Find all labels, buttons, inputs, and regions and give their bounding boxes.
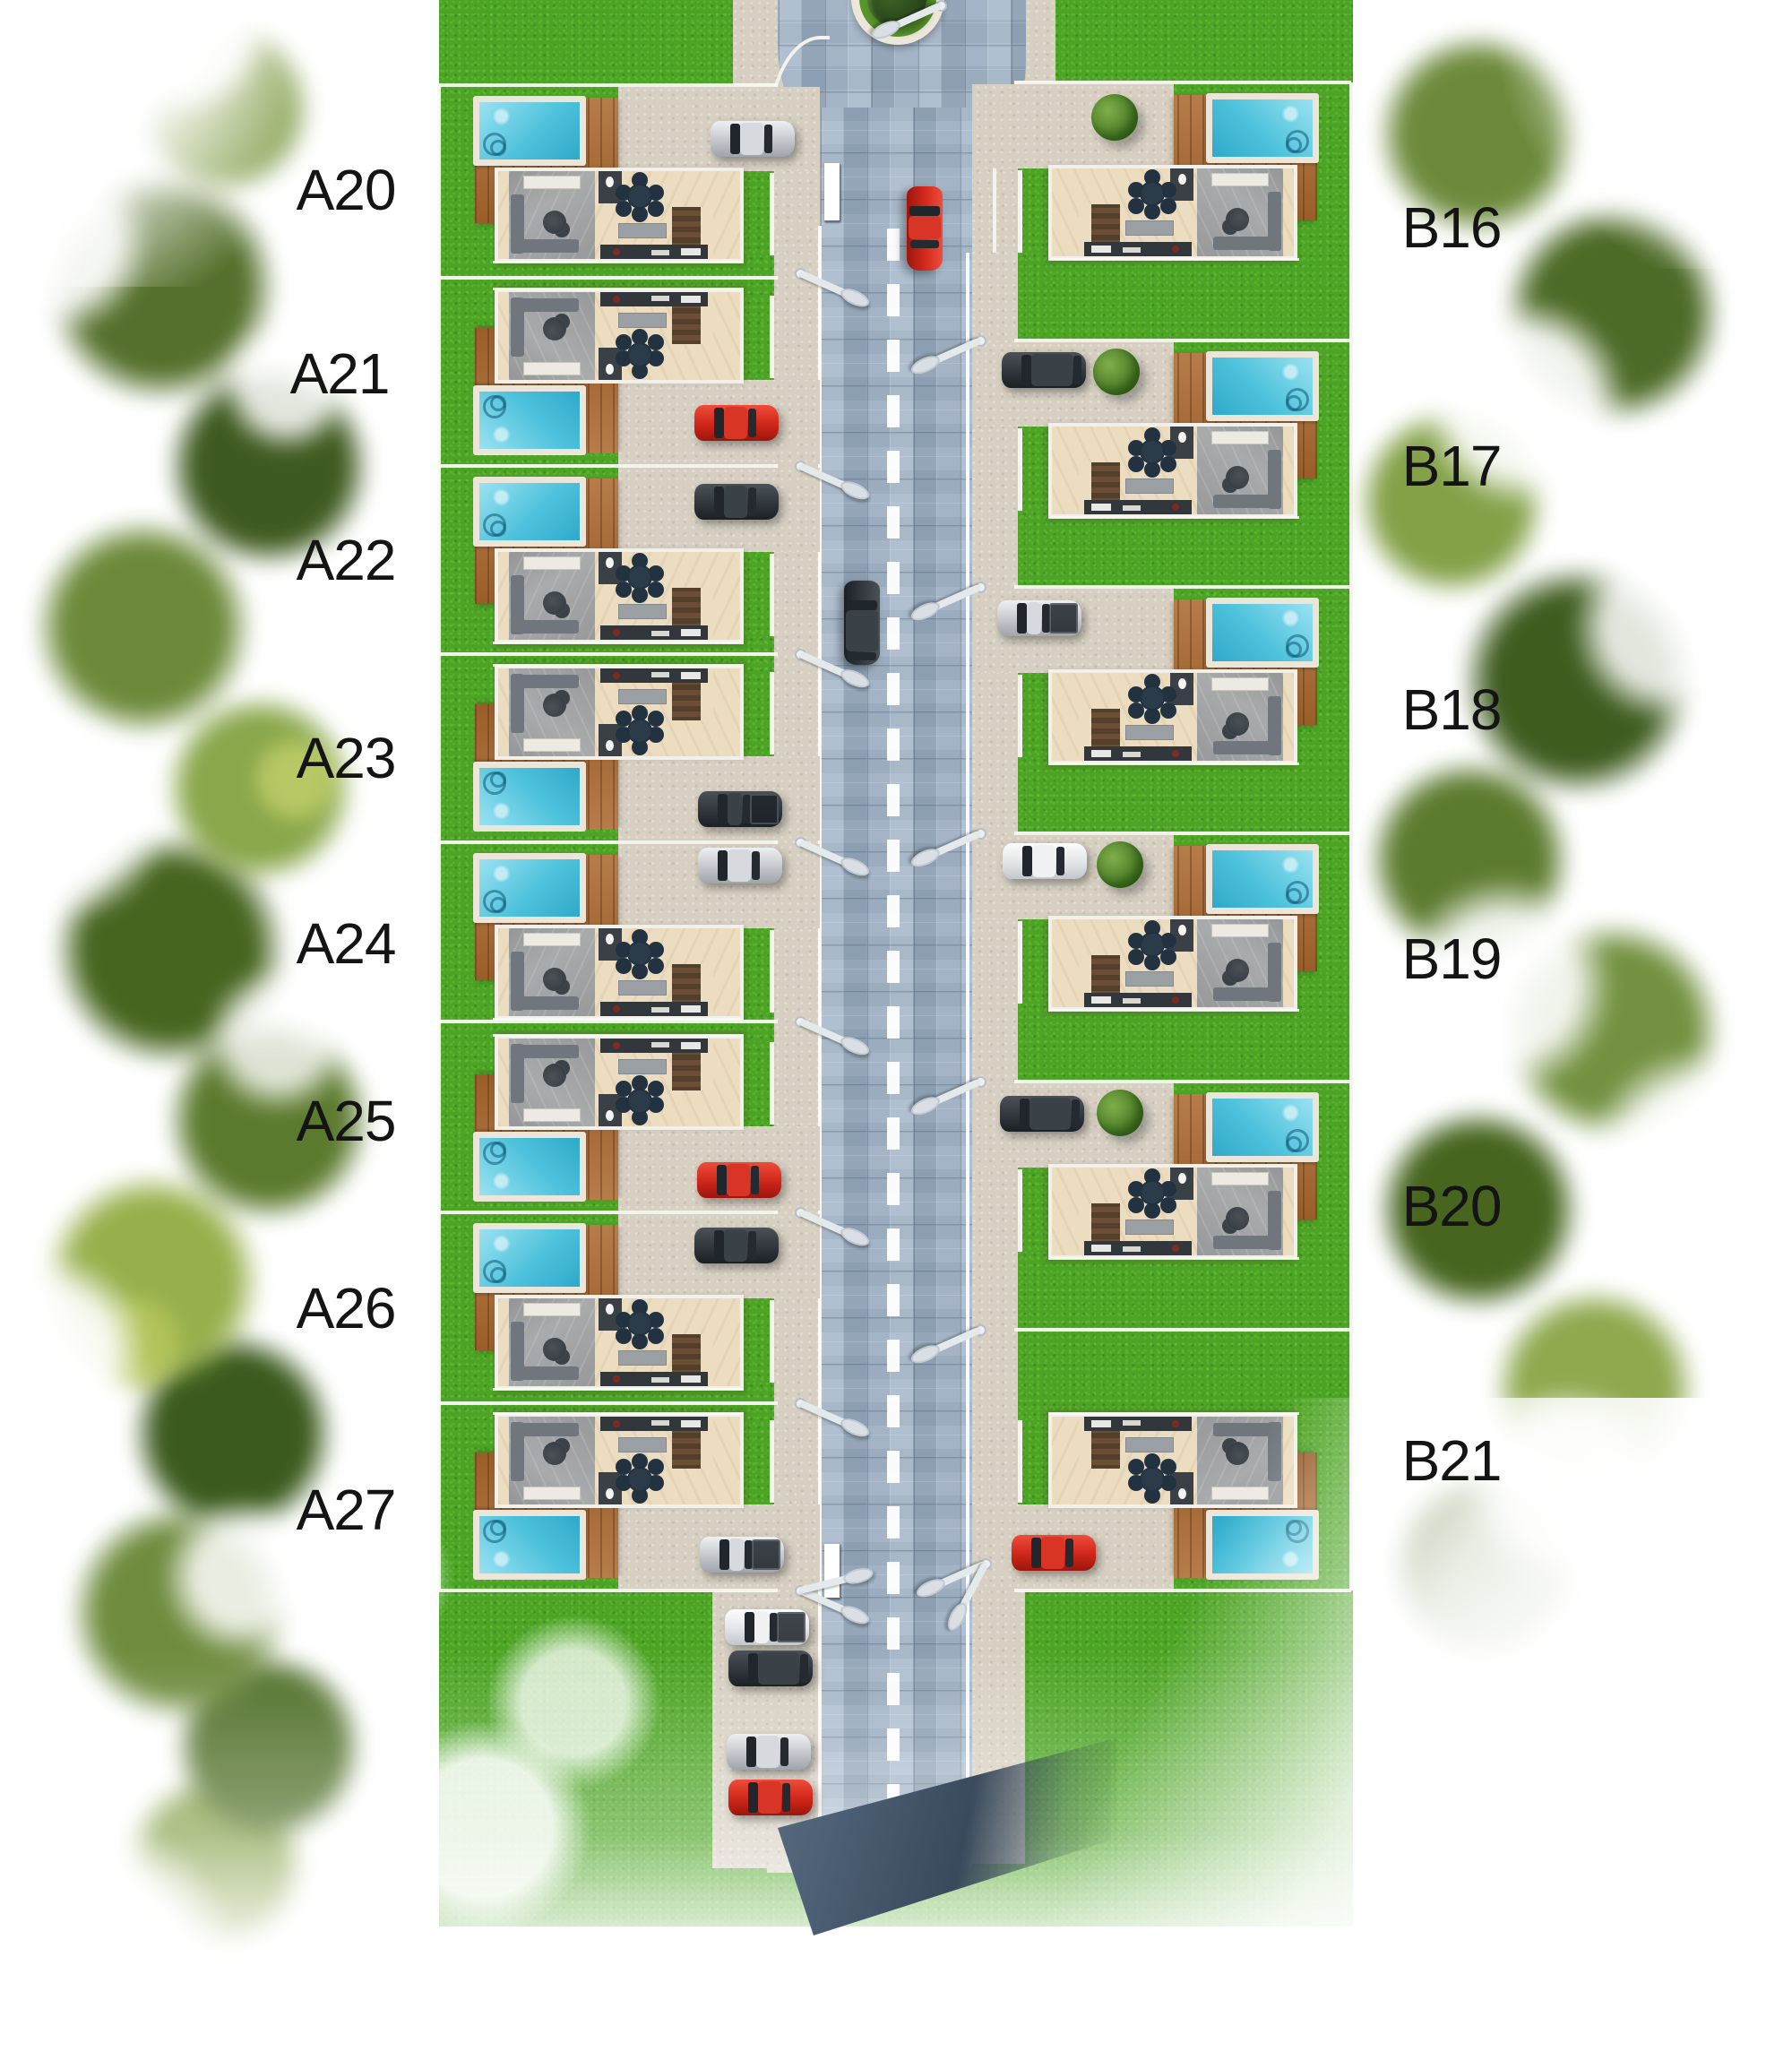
dining-table: [1142, 1182, 1163, 1203]
car: [700, 1537, 784, 1573]
pool-water: [1212, 99, 1313, 157]
villa-front-hedge: [742, 296, 769, 378]
pool-water: [479, 1516, 580, 1573]
dining-table: [629, 943, 650, 964]
coffee-table: [1226, 208, 1249, 231]
lot-label-B18[interactable]: B18: [1402, 677, 1502, 743]
villa-front-wall: [1018, 921, 1022, 1004]
pool-water: [479, 1229, 580, 1287]
villa-front-hedge: [1023, 170, 1050, 253]
settee: [1211, 1172, 1269, 1185]
fade-top-left: [0, 0, 412, 287]
settee: [523, 1303, 581, 1316]
site-plan: A20A21A22A23A24A25A26A27B16B17B18B19B20B…: [0, 0, 1792, 2060]
garden-wall: [493, 1388, 744, 1391]
bathroom: [1170, 673, 1193, 705]
dining-table: [629, 1090, 650, 1112]
car: [1002, 352, 1086, 388]
sofa: [511, 1366, 579, 1380]
car: [907, 186, 943, 271]
kitchen-counter: [600, 625, 708, 640]
living-room: [1197, 1168, 1283, 1255]
kitchen-counter: [600, 245, 708, 259]
settee: [523, 556, 581, 570]
bathroom: [599, 928, 622, 961]
villa-front-wall: [770, 930, 774, 1013]
villa-front-wall: [1018, 428, 1022, 511]
bathroom: [599, 1094, 622, 1126]
swimming-pool: [1206, 598, 1319, 668]
kitchen-counter: [600, 292, 708, 306]
villa-house: [1048, 916, 1297, 1011]
settee: [1211, 677, 1269, 691]
kitchen-counter: [600, 1039, 708, 1053]
bathroom: [599, 348, 622, 380]
sofa: [511, 996, 579, 1010]
kitchen-counter: [1084, 1241, 1192, 1255]
swimming-pool: [473, 853, 586, 923]
villa-house: [495, 548, 744, 643]
bathroom: [1170, 168, 1193, 201]
villa-house: [1048, 1164, 1297, 1259]
kitchen-counter: [1084, 746, 1192, 761]
bathroom: [1170, 1168, 1193, 1200]
villa-front-hedge: [1023, 675, 1050, 757]
car: [728, 1651, 813, 1686]
kitchen-island: [618, 313, 667, 328]
coffee-table: [543, 591, 566, 615]
villa-house: [1048, 669, 1297, 764]
living-room: [509, 1039, 595, 1126]
fence-line: [1014, 1589, 1351, 1592]
kitchen-island: [618, 604, 667, 619]
living-room: [509, 1417, 595, 1504]
dining-table: [1142, 441, 1163, 462]
villa-house: [495, 1295, 744, 1390]
lot-label-B17[interactable]: B17: [1402, 433, 1502, 499]
villa-driveway: [972, 84, 1174, 168]
dining-table: [1142, 687, 1163, 709]
lot-label-A25[interactable]: A25: [297, 1088, 396, 1154]
villa-house: [495, 665, 744, 760]
dining-table: [629, 720, 650, 742]
sofa: [1213, 987, 1281, 1001]
kitchen-counter: [1084, 242, 1192, 256]
fence-line: [439, 840, 778, 844]
kitchen-island: [1125, 971, 1174, 987]
coffee-table: [1226, 959, 1249, 982]
garden-wall: [493, 1412, 744, 1415]
pool-water: [479, 1138, 580, 1195]
villa-front-wall: [770, 554, 774, 636]
sofa: [511, 1045, 579, 1058]
pool-water: [479, 102, 580, 159]
foliage-left: [0, 0, 466, 2007]
villa-front-wall: [770, 672, 774, 754]
garden-wall: [1048, 1412, 1299, 1415]
coffee-table: [543, 211, 566, 234]
settee: [1211, 924, 1269, 937]
sofa: [1213, 1423, 1281, 1436]
lot-label-A21[interactable]: A21: [290, 340, 390, 407]
sofa: [511, 239, 579, 253]
bathroom: [599, 724, 622, 756]
villa-front-wall: [770, 1420, 774, 1503]
crosswalk-top: [824, 163, 971, 220]
car: [694, 405, 779, 441]
pool-ripple-icon: [483, 395, 506, 418]
swimming-pool: [473, 477, 586, 547]
car: [1003, 843, 1087, 879]
sofa: [1213, 237, 1281, 250]
swimming-pool: [473, 1510, 586, 1580]
dining-table: [629, 185, 650, 207]
coffee-table: [1226, 466, 1249, 489]
villa-front-hedge: [742, 173, 769, 255]
settee: [523, 738, 581, 752]
dining-table: [629, 1469, 650, 1490]
bathroom: [599, 1472, 622, 1504]
kitchen-counter: [600, 1417, 708, 1431]
villa-front-hedge: [742, 672, 769, 754]
car: [698, 848, 782, 883]
lot-A20[interactable]: [439, 85, 820, 278]
car: [727, 1734, 811, 1770]
garden-wall: [1048, 763, 1299, 765]
bathroom: [599, 552, 622, 584]
pool-water: [1212, 850, 1313, 908]
fence-line: [439, 83, 778, 87]
lot-label-B20[interactable]: B20: [1402, 1173, 1502, 1239]
coffee-table: [543, 1442, 566, 1465]
lot-label-B21[interactable]: B21: [1402, 1427, 1502, 1494]
fence-line: [1014, 339, 1351, 342]
garden-wall: [493, 288, 744, 290]
swimming-pool: [473, 1223, 586, 1293]
pool-water: [479, 483, 580, 540]
pool-ripple-icon: [483, 1260, 506, 1283]
coffee-table: [543, 1338, 566, 1361]
settee: [1211, 431, 1269, 444]
living-room: [509, 1298, 595, 1386]
lot-label-A24[interactable]: A24: [297, 910, 396, 977]
foliage-right: [1317, 0, 1792, 1810]
living-room: [509, 928, 595, 1016]
swimming-pool: [1206, 351, 1319, 421]
fade-top-right: [1469, 0, 1792, 269]
fence-line-west: [437, 85, 441, 1590]
villa-house: [495, 925, 744, 1020]
dining-table: [629, 566, 650, 588]
bathroom: [599, 1298, 622, 1331]
fence-line: [1014, 1328, 1351, 1332]
sofa: [1213, 741, 1281, 754]
kitchen-island: [618, 1059, 667, 1074]
pool-water: [1212, 1099, 1313, 1156]
swimming-pool: [473, 96, 586, 166]
living-room: [509, 292, 595, 380]
pool-water: [479, 859, 580, 917]
villa-B16: [972, 82, 1353, 262]
coffee-table: [1226, 712, 1249, 736]
dining-table: [629, 344, 650, 366]
villa-house: [495, 1413, 744, 1508]
villa-A20: [439, 85, 820, 264]
car: [711, 121, 795, 157]
garden-wall: [1048, 516, 1299, 519]
fence-line: [439, 276, 778, 280]
car: [697, 1162, 781, 1198]
villa-front-hedge: [1023, 1420, 1050, 1503]
villa-front-hedge: [742, 1420, 769, 1503]
fence-line: [439, 1020, 778, 1023]
kitchen-island: [618, 689, 667, 704]
villa-front-wall: [1018, 1420, 1022, 1503]
pool-water: [1212, 358, 1313, 415]
car: [694, 484, 779, 520]
lot-label-B19[interactable]: B19: [1402, 926, 1502, 992]
pool-ripple-icon: [483, 1520, 506, 1543]
villa-front-wall: [770, 173, 774, 255]
sofa: [511, 675, 579, 688]
villa-front-hedge: [1023, 921, 1050, 1004]
fence-line: [1014, 81, 1351, 84]
swimming-pool: [473, 1132, 586, 1202]
villa-house: [495, 1035, 744, 1130]
pool-water: [1212, 604, 1313, 661]
fence-line: [1014, 832, 1351, 835]
car: [728, 1780, 813, 1815]
settee: [523, 1487, 581, 1500]
living-room: [1197, 1417, 1283, 1504]
settee: [523, 1108, 581, 1122]
car: [997, 600, 1081, 636]
villa-front-wall: [1018, 170, 1022, 253]
living-room: [1197, 673, 1283, 761]
sofa: [1213, 495, 1281, 508]
pool-ripple-icon: [483, 133, 506, 156]
living-room: [1197, 427, 1283, 514]
villa-front-hedge: [742, 1300, 769, 1383]
fence-line: [1014, 1080, 1351, 1083]
villa-house: [495, 289, 744, 384]
living-room: [509, 171, 595, 259]
garden-wall: [1048, 258, 1299, 261]
fence-line: [439, 1401, 778, 1405]
fence-line: [439, 464, 778, 468]
bush-icon: [1097, 1090, 1143, 1136]
crosswalk-bottom: [824, 1544, 971, 1598]
swimming-pool: [1206, 844, 1319, 914]
road-center-line: [887, 228, 900, 1846]
coffee-table: [543, 1064, 566, 1087]
car: [1012, 1535, 1096, 1571]
dining-table: [629, 1313, 650, 1334]
settee: [523, 362, 581, 375]
swimming-pool: [473, 385, 586, 455]
fence-line: [439, 652, 778, 656]
lot-label-A23[interactable]: A23: [297, 725, 396, 791]
pool-ripple-icon: [483, 513, 506, 537]
pool-water: [479, 392, 580, 449]
lot-label-A20[interactable]: A20: [297, 157, 396, 223]
kitchen-counter: [1084, 1417, 1192, 1431]
garden-wall: [493, 664, 744, 667]
lot-B16[interactable]: [972, 82, 1353, 340]
coffee-table: [543, 317, 566, 340]
kitchen-island: [1125, 478, 1174, 494]
bush-icon: [1093, 349, 1140, 395]
living-room: [509, 552, 595, 640]
villa-front-wall: [770, 1042, 774, 1125]
lot-label-A26[interactable]: A26: [297, 1275, 396, 1341]
garden-wall: [1048, 1257, 1299, 1260]
garden-wall: [1048, 1009, 1299, 1012]
kitchen-island: [618, 223, 667, 238]
swimming-pool: [1206, 93, 1319, 163]
pool-ripple-icon: [1286, 881, 1309, 904]
villa-house: [1048, 165, 1297, 260]
coffee-table: [543, 968, 566, 991]
kitchen-counter: [600, 668, 708, 683]
lot-label-A27[interactable]: A27: [297, 1477, 396, 1543]
kitchen-island: [618, 980, 667, 996]
coffee-table: [543, 694, 566, 717]
bathroom: [599, 171, 622, 203]
pool-ripple-icon: [1286, 1129, 1309, 1152]
garden-wall: [493, 1034, 744, 1037]
villa-front-hedge: [742, 1042, 769, 1125]
pool-ripple-icon: [1286, 130, 1309, 153]
swimming-pool: [1206, 1510, 1319, 1580]
car: [698, 791, 782, 827]
fence-line: [439, 1211, 778, 1214]
settee: [523, 933, 581, 946]
car: [844, 581, 880, 665]
coffee-table: [1226, 1442, 1249, 1465]
pool-ripple-icon: [483, 1142, 506, 1165]
bathroom: [1170, 427, 1193, 459]
kitchen-island: [1125, 725, 1174, 740]
garden-wall: [493, 261, 744, 263]
pool-water: [479, 768, 580, 825]
car: [725, 1609, 809, 1645]
pool-ripple-icon: [483, 771, 506, 795]
pool-ripple-icon: [1286, 634, 1309, 658]
bush-icon: [1091, 94, 1138, 141]
living-room: [1197, 168, 1283, 256]
fence-line: [439, 1589, 778, 1592]
villa-front-hedge: [1023, 1169, 1050, 1252]
villa-house: [495, 168, 744, 263]
villa-front-wall: [1018, 675, 1022, 757]
kitchen-island: [1125, 220, 1174, 236]
sofa: [511, 1423, 579, 1436]
sofa: [511, 620, 579, 634]
dining-table: [1142, 934, 1163, 955]
pool-ripple-icon: [1286, 388, 1309, 411]
garden-wall: [493, 642, 744, 644]
lot-label-A22[interactable]: A22: [297, 527, 396, 593]
car: [1000, 1096, 1084, 1132]
kitchen-island: [618, 1437, 667, 1452]
car: [694, 1228, 779, 1263]
fence-line: [1014, 585, 1351, 589]
kitchen-counter: [600, 1002, 708, 1016]
kitchen-island: [1125, 1220, 1174, 1235]
pool-ripple-icon: [1286, 1520, 1309, 1543]
kitchen-counter: [600, 1372, 708, 1386]
fence-line-east: [1349, 82, 1353, 1590]
kitchen-counter: [1084, 993, 1192, 1007]
villa-front-wall: [770, 1300, 774, 1383]
settee: [523, 176, 581, 189]
settee: [1211, 1487, 1269, 1500]
swimming-pool: [473, 762, 586, 832]
bush-icon: [1097, 841, 1143, 888]
villa-front-hedge: [742, 554, 769, 636]
villa-front-hedge: [1023, 428, 1050, 511]
sofa: [1213, 1236, 1281, 1249]
living-room: [509, 668, 595, 756]
swimming-pool: [1206, 1092, 1319, 1162]
living-room: [1197, 919, 1283, 1007]
villa-house: [1048, 423, 1297, 518]
bathroom: [1170, 919, 1193, 952]
villa-front-wall: [770, 296, 774, 378]
kitchen-counter: [1084, 500, 1192, 514]
kitchen-island: [618, 1350, 667, 1366]
villa-front-hedge: [742, 930, 769, 1013]
kitchen-island: [1125, 1437, 1174, 1452]
dining-table: [1142, 183, 1163, 204]
bathroom: [1170, 1472, 1193, 1504]
pool-water: [1212, 1516, 1313, 1573]
sofa: [511, 298, 579, 312]
lot-label-B16[interactable]: B16: [1402, 194, 1502, 261]
dining-table: [1142, 1469, 1163, 1490]
coffee-table: [1226, 1207, 1249, 1230]
villa-house: [1048, 1413, 1297, 1508]
villa-front-wall: [1018, 1169, 1022, 1252]
pool-ripple-icon: [483, 890, 506, 913]
settee: [1211, 173, 1269, 186]
